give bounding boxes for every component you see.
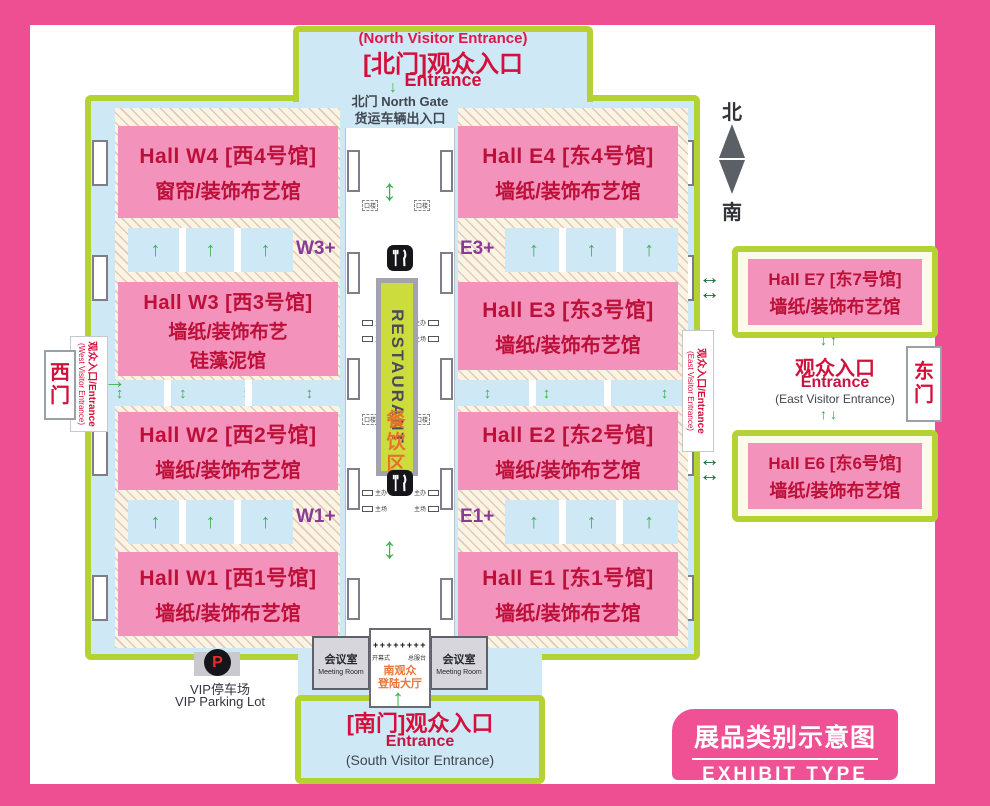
- door: [347, 578, 360, 620]
- meeting-room-west: 会议室 Meeting Room: [312, 636, 370, 690]
- south-entrance-label: Entrance: [295, 733, 545, 751]
- up-arrow-icon: ↑: [644, 240, 654, 260]
- door: [92, 255, 108, 301]
- updown-arrow-icon: ↕: [306, 386, 314, 401]
- up-arrow-icon: ↑: [586, 512, 596, 532]
- service-chip: [428, 320, 439, 326]
- service-chip: [428, 506, 439, 512]
- up-arrow-icon: ↑: [644, 512, 654, 532]
- door: [440, 358, 453, 400]
- right-arrow-icon: →: [104, 370, 126, 392]
- updown-arrow-icon: ↕: [484, 386, 492, 401]
- connector-strip: ↑ ↑ ↑: [128, 500, 293, 544]
- transfer-arrows-icon: ↔↔: [699, 452, 720, 482]
- legend-title-cn: 展品类别示意图: [672, 718, 898, 754]
- turnstile-row: ++++++++: [369, 640, 431, 650]
- south-entrance-subtitle: (South Visitor Entrance): [295, 752, 545, 768]
- up-arrow-icon: ↑: [392, 687, 404, 711]
- updown-arrow-icon: ↕: [543, 386, 551, 401]
- stair-label: 口楼: [414, 200, 430, 211]
- service-chip: [428, 336, 439, 342]
- hall-e4: Hall E4 [东4号馆] 墙纸/装饰布艺馆: [458, 126, 678, 218]
- hall-e3: Hall E3 [东3号馆] 墙纸/装饰布艺馆: [458, 282, 678, 370]
- exhibit-type-legend: 展品类别示意图 EXHIBIT TYPE: [668, 705, 902, 784]
- east-strip-line2: (East Visitor Entrance): [686, 348, 695, 434]
- hall-w3: Hall W3 [西3号馆] 墙纸/装饰布艺 硅藻泥馆: [118, 282, 338, 376]
- lobby-note-right: 总服台: [408, 653, 426, 662]
- floor-plan: (North Visitor Entrance) [北门]观众入口 Entran…: [0, 0, 990, 806]
- connector-strip: ↑ ↑ ↑: [505, 228, 678, 272]
- hall-e1: Hall E1 [东1号馆] 墙纸/装饰布艺馆: [458, 552, 678, 636]
- east-entrance-subtitle: (East Visitor Entrance): [745, 392, 925, 406]
- door: [92, 140, 108, 186]
- up-arrow-icon: ↑: [261, 240, 271, 260]
- compass-north-arrow-icon: [719, 124, 745, 158]
- meeting-room-east: 会议室 Meeting Room: [430, 636, 488, 690]
- updown-arrow-icon: ↕: [661, 386, 669, 401]
- hall-w2: Hall W2 [西2号馆] 墙纸/装饰布艺馆: [118, 412, 338, 490]
- compass-north-label: 北: [714, 96, 750, 125]
- vip-parking-en: VIP Parking Lot: [150, 694, 290, 709]
- up-arrow-icon: ↑: [586, 240, 596, 260]
- up-arrow-icon: ↑: [151, 240, 161, 260]
- east-entrance-label: Entrance: [745, 374, 925, 392]
- fork-knife-icon: [387, 245, 413, 271]
- east-cross-corridor: ↕ ↕ ↕ ↕: [458, 380, 694, 406]
- door: [347, 468, 360, 510]
- legend-title-en: EXHIBIT TYPE: [672, 764, 898, 786]
- hall-e6: Hall E6 [东6号馆] 墙纸/装饰布艺馆: [748, 443, 922, 509]
- east-entrance-strip: 观众入口/Entrance (East Visitor Entrance): [682, 330, 714, 452]
- compass-south-label: 南: [714, 196, 750, 225]
- hall-w1: Hall W1 [西1号馆] 墙纸/装饰布艺馆: [118, 552, 338, 636]
- door: [440, 468, 453, 510]
- up-arrow-icon: ↑: [261, 512, 271, 532]
- hall-e7-box: Hall E7 [东7号馆] 墙纸/装饰布艺馆: [732, 246, 938, 338]
- updown-arrow-icon: ↕: [382, 176, 397, 206]
- west-strip-line2: (West Visitor Entrance): [77, 341, 86, 427]
- legend-divider: [692, 758, 878, 760]
- flow-arrows-icon: ↓↑: [820, 332, 840, 348]
- zone-label-w1plus: W1+: [296, 506, 336, 528]
- fork-knife-icon: [387, 470, 413, 496]
- dining-area-label: 餐饮区: [385, 410, 407, 476]
- service-label: 主场: [362, 504, 387, 513]
- up-arrow-icon: ↑: [206, 512, 216, 532]
- north-gate-note: 北门 North Gate 货运车辆出入口: [325, 94, 475, 128]
- up-arrow-icon: ↑: [529, 240, 539, 260]
- service-chip: [362, 320, 373, 326]
- service-label: 主办: [414, 488, 439, 497]
- door: [92, 430, 108, 476]
- door: [440, 578, 453, 620]
- door: [440, 252, 453, 294]
- west-gate: 西门: [44, 350, 76, 420]
- up-arrow-icon: ↑: [206, 240, 216, 260]
- hall-e7: Hall E7 [东7号馆] 墙纸/装饰布艺馆: [748, 259, 922, 325]
- service-chip: [428, 490, 439, 496]
- zone-label-w3plus: W3+: [296, 238, 336, 260]
- flow-arrows-icon: ↑↓: [820, 406, 840, 422]
- door: [92, 575, 108, 621]
- hall-e6-box: Hall E6 [东6号馆] 墙纸/装饰布艺馆: [732, 430, 938, 522]
- lobby-note-left: 开幕式: [372, 653, 390, 662]
- door: [347, 150, 360, 192]
- hall-e2: Hall E2 [东2号馆] 墙纸/装饰布艺馆: [458, 412, 678, 490]
- updown-arrow-icon: ↕: [382, 534, 397, 564]
- west-strip-line1: 观众入口/Entrance: [86, 341, 101, 427]
- east-gate: 东门: [906, 346, 942, 422]
- service-chip: [362, 336, 373, 342]
- connector-strip: ↑ ↑ ↑: [128, 228, 293, 272]
- stair-label: 口楼: [362, 200, 378, 211]
- parking-icon: P: [204, 649, 231, 676]
- transfer-arrows-icon: ↔↔: [699, 270, 720, 300]
- updown-arrow-icon: ↕: [179, 386, 187, 401]
- compass-south-arrow-icon: [719, 160, 745, 194]
- door: [347, 358, 360, 400]
- service-label: 主办: [362, 488, 387, 497]
- zone-label-e1plus: E1+: [460, 506, 494, 528]
- door: [347, 252, 360, 294]
- east-strip-line1: 观众入口/Entrance: [695, 348, 710, 434]
- door: [440, 150, 453, 192]
- up-arrow-icon: ↑: [529, 512, 539, 532]
- north-entrance-label: Entrance: [293, 70, 593, 91]
- zone-label-e3plus: E3+: [460, 238, 494, 260]
- hall-w4: Hall W4 [西4号馆] 窗帘/装饰布艺馆: [118, 126, 338, 218]
- up-arrow-icon: ↑: [151, 512, 161, 532]
- service-chip: [362, 506, 373, 512]
- connector-strip: ↑ ↑ ↑: [505, 500, 678, 544]
- service-chip: [362, 490, 373, 496]
- service-label: 主场: [414, 504, 439, 513]
